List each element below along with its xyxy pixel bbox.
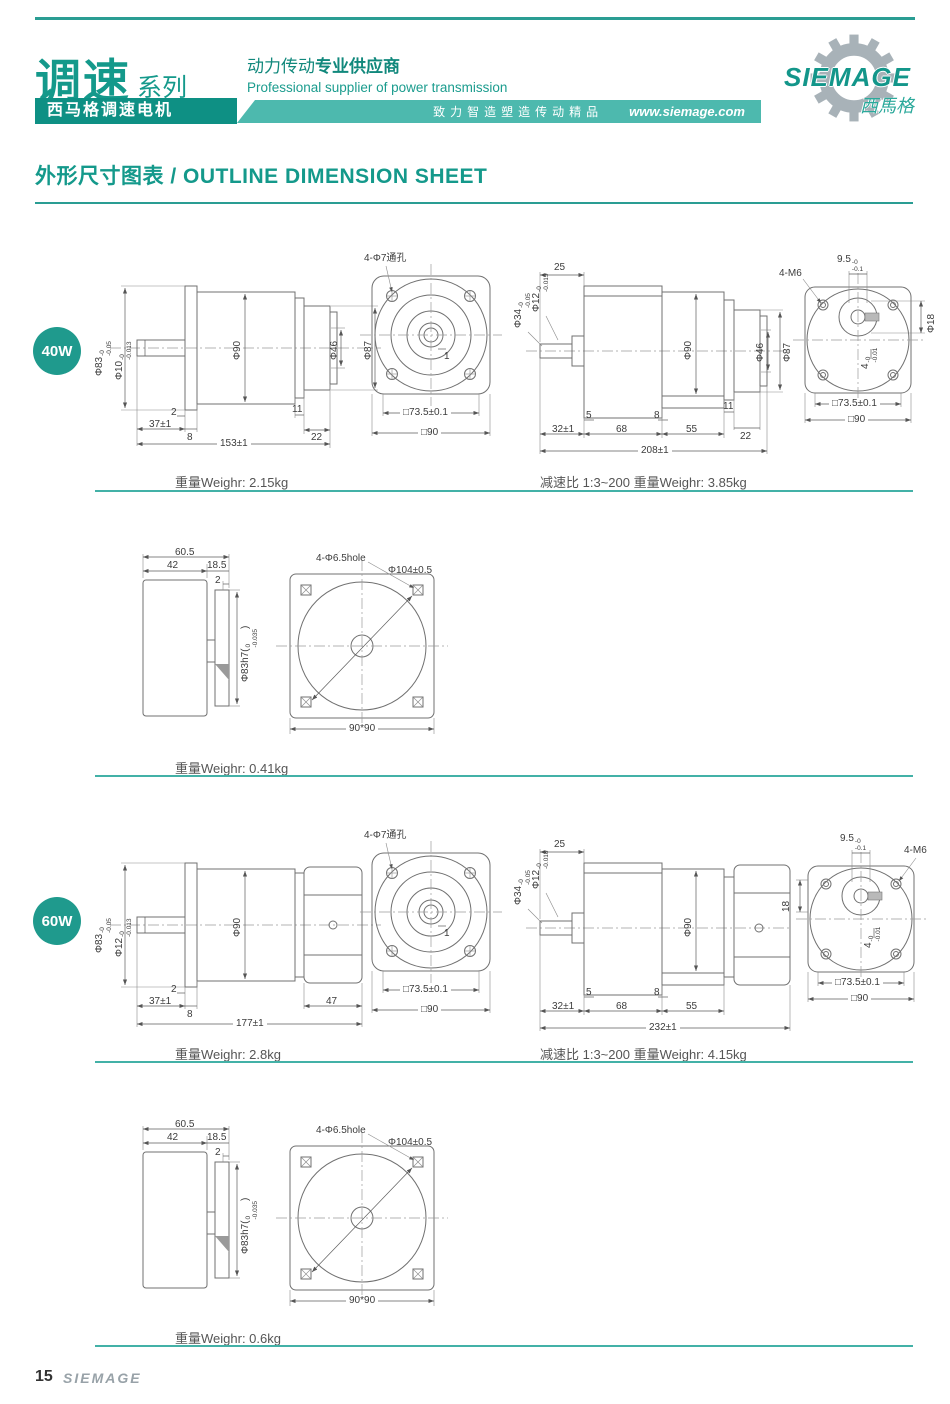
dim-label: 4-M6 <box>779 269 802 279</box>
dim-label: 11 <box>292 405 302 415</box>
dim-label: 2 <box>215 576 221 586</box>
power-badge-60w: 60W <box>33 897 81 945</box>
dim-label: 232±1 <box>646 1023 680 1033</box>
drawing-60w-rear-view: 9.5-0-0.1 4-M6 18 4-0-0.01 □73.5±0.1 □90 <box>778 832 943 1007</box>
dim-label: 4-0-0.01 <box>861 348 879 369</box>
dim-label: 22 <box>311 433 322 443</box>
separator-rule <box>95 1345 913 1347</box>
dim-label: 1 <box>444 929 450 939</box>
dim-label: Φ10-0-0.013 <box>115 341 133 380</box>
footer-brand: SIEMAGE <box>63 1370 142 1386</box>
dim-label: □90 <box>848 994 871 1004</box>
drawing-60w-fan-side: 60.5 42 18.5 2 Φ83h7(0-0.035) <box>135 1120 270 1310</box>
dim-label: 4-Φ6.5hole <box>316 1126 366 1136</box>
dim-label: 90*90 <box>346 724 378 734</box>
dim-label: Φ90 <box>233 918 243 937</box>
website-text: www.siemage.com <box>629 104 745 119</box>
page-title: 外形尺寸图表 / OUTLINE DIMENSION SHEET <box>35 160 487 190</box>
separator-rule <box>95 775 913 777</box>
dim-label: □90 <box>418 1005 441 1015</box>
dim-label: 4-Φ7通孔 <box>364 831 406 841</box>
dim-label: 90*90 <box>346 1296 378 1306</box>
dim-label: 2 <box>171 985 177 995</box>
dim-label: 68 <box>616 1002 627 1012</box>
tagline-cn: 动力传动 <box>247 57 315 76</box>
dim-label: Φ90 <box>684 918 694 937</box>
dim-label: 68 <box>616 425 627 435</box>
dim-label: 18.5 <box>207 1133 226 1143</box>
dim-label: 55 <box>686 1002 697 1012</box>
dim-label: 8 <box>187 1010 193 1020</box>
dim-label: Φ12-0-0.013 <box>115 918 133 957</box>
drawing-60w-front-view: 4-Φ7通孔 1 □73.5±0.1 □90 <box>348 829 513 1029</box>
dim-label: 22 <box>740 432 751 442</box>
dim-label: □73.5±0.1 <box>832 978 883 988</box>
page-number: 15 <box>35 1368 53 1386</box>
dim-label: 42 <box>167 1133 178 1143</box>
dim-label: 8 <box>187 433 193 443</box>
tagline-cn-bold: 专业供应商 <box>315 57 400 76</box>
drawing-60w-fan-front: 4-Φ6.5hole Φ104±0.5 90*90 <box>272 1124 452 1314</box>
drawing-60w-gear-side: Φ34-0-0.05 Φ12-0-0.018 25 Φ90 5 8 32±1 6… <box>512 825 792 1040</box>
dim-label: 18.5 <box>207 561 226 571</box>
drawing-40w-fan-side: 60.5 42 18.5 2 Φ83h7(0-0.035) <box>135 548 270 738</box>
drawing-60w-front-view-art <box>348 829 513 1029</box>
drawing-40w-fan-front-art <box>272 552 452 742</box>
dim-label: 2 <box>171 408 177 418</box>
dim-label: Φ12-0-0.018 <box>532 850 550 889</box>
dim-label: 25 <box>554 840 565 850</box>
slogan-text: 致力智造塑造传动精品 <box>433 103 603 120</box>
drawing-40w-front-view: 4-Φ7通孔 1 □73.5±0.1 □90 <box>348 252 513 452</box>
drawing-40w-gear-side: Φ34-0-0.05 Φ12-0-0.015 25 Φ90 Φ46 Φ87 5 … <box>512 248 792 463</box>
dim-label: Φ90 <box>233 341 243 360</box>
dim-label: 32±1 <box>552 425 574 435</box>
dim-label: 37±1 <box>149 997 171 1007</box>
dim-label: Φ46 <box>756 343 766 362</box>
page-top-rule <box>35 17 915 20</box>
dim-label: Φ34-0-0.05 <box>514 870 532 905</box>
dim-label: Φ83-0-0.05 <box>95 918 113 953</box>
brand-logo: SIEMAGE 西馬格 <box>782 30 942 130</box>
dim-label: 1 <box>444 352 450 362</box>
dim-label: □73.5±0.1 <box>829 399 880 409</box>
dim-label: Φ34-0-0.05 <box>514 293 532 328</box>
dim-label: 9.5-0-0.1 <box>840 834 866 852</box>
dim-label: Φ90 <box>684 341 694 360</box>
drawing-40w-fan-front: 4-Φ6.5hole Φ104±0.5 90*90 <box>272 552 452 742</box>
drawing-40w-rear-view: 9.5-0-0.1 4-M6 Φ18 4-0-0.01 □73.5±0.1 □9… <box>775 253 940 428</box>
drawing-40w-motor-side: Φ83-0-0.05 Φ10-0-0.013 Φ90 Φ46 Φ87 2 37±… <box>85 248 385 463</box>
dim-label: 8 <box>654 411 660 421</box>
dim-label: Φ83-0-0.05 <box>95 341 113 376</box>
dim-label: 5 <box>586 988 592 998</box>
tagline-en: Professional supplier of power transmiss… <box>247 80 507 95</box>
weight-label-gear-40w: 减速比 1:3~200 重量Weighr: 3.85kg <box>540 472 747 491</box>
dim-label: 37±1 <box>149 420 171 430</box>
title-rule <box>35 202 913 204</box>
dim-label: □73.5±0.1 <box>400 408 451 418</box>
dim-label: 32±1 <box>552 1002 574 1012</box>
dim-label: 177±1 <box>233 1019 267 1029</box>
dim-label: 60.5 <box>175 548 194 558</box>
brand-band: 致力智造塑造传动精品 www.siemage.com <box>237 100 761 123</box>
dim-label: 25 <box>554 263 565 273</box>
dim-label: Φ46 <box>330 341 340 360</box>
dim-label: 42 <box>167 561 178 571</box>
weight-label-motor-40w: 重量Weighr: 2.15kg <box>175 472 288 491</box>
separator-rule <box>95 1061 913 1063</box>
dim-label: 4-Φ7通孔 <box>364 254 406 264</box>
dim-label: Φ104±0.5 <box>388 1138 432 1148</box>
dim-label: 208±1 <box>638 446 672 456</box>
dim-label: 2 <box>215 1148 221 1158</box>
dim-label: □90 <box>418 428 441 438</box>
drawing-40w-front-view-art <box>348 252 513 452</box>
dim-label: □73.5±0.1 <box>400 985 451 995</box>
dim-label: 60.5 <box>175 1120 194 1130</box>
header-tagline: 动力传动专业供应商 Professional supplier of power… <box>247 52 507 95</box>
separator-rule <box>95 490 913 492</box>
dim-label: Φ83h7(0-0.035) <box>241 1198 259 1254</box>
dim-label: 55 <box>686 425 697 435</box>
dim-label: 5 <box>586 411 592 421</box>
dim-label: 11 <box>723 402 733 412</box>
dim-label: Φ104±0.5 <box>388 566 432 576</box>
dim-label: 8 <box>654 988 660 998</box>
product-line-bar: 西马格调速电机 <box>35 98 237 124</box>
dim-label: □90 <box>845 415 868 425</box>
dim-label: Φ18 <box>927 314 937 333</box>
dim-label: Φ83h7(0-0.035) <box>241 626 259 682</box>
brand-name: SIEMAGE <box>784 62 911 93</box>
dim-label: Φ12-0-0.015 <box>532 273 550 312</box>
dim-label: 153±1 <box>217 439 251 449</box>
dim-label: 4-Φ6.5hole <box>316 554 366 564</box>
dim-label: 18 <box>782 901 792 912</box>
drawing-60w-motor-side: Φ83-0-0.05 Φ12-0-0.013 Φ90 2 37±1 8 47 1… <box>85 825 385 1040</box>
dim-label: 9.5-0-0.1 <box>837 255 863 273</box>
dim-label: 4-M6 <box>904 846 927 856</box>
drawing-60w-fan-front-art <box>272 1124 452 1314</box>
power-badge-40w: 40W <box>33 327 81 375</box>
dim-label: 4-0-0.01 <box>864 927 882 948</box>
brand-name-cn: 西馬格 <box>860 92 914 118</box>
dim-label: 47 <box>326 997 337 1007</box>
